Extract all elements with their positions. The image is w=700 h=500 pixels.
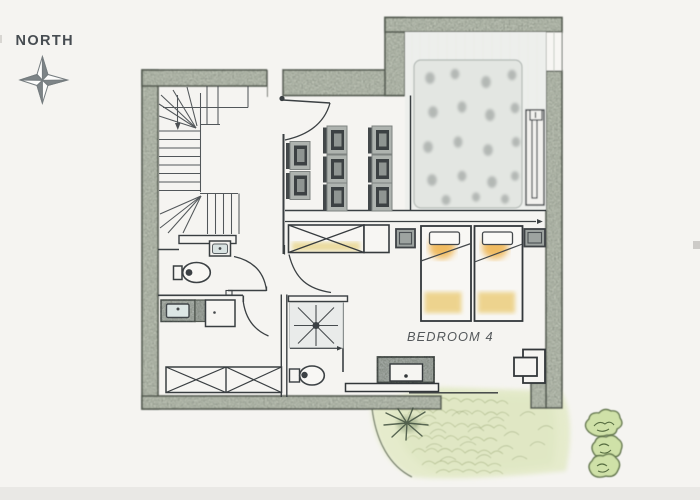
svg-text:BEDROOM 4: BEDROOM 4 [407,329,494,344]
svg-text:NORTH: NORTH [16,33,75,49]
